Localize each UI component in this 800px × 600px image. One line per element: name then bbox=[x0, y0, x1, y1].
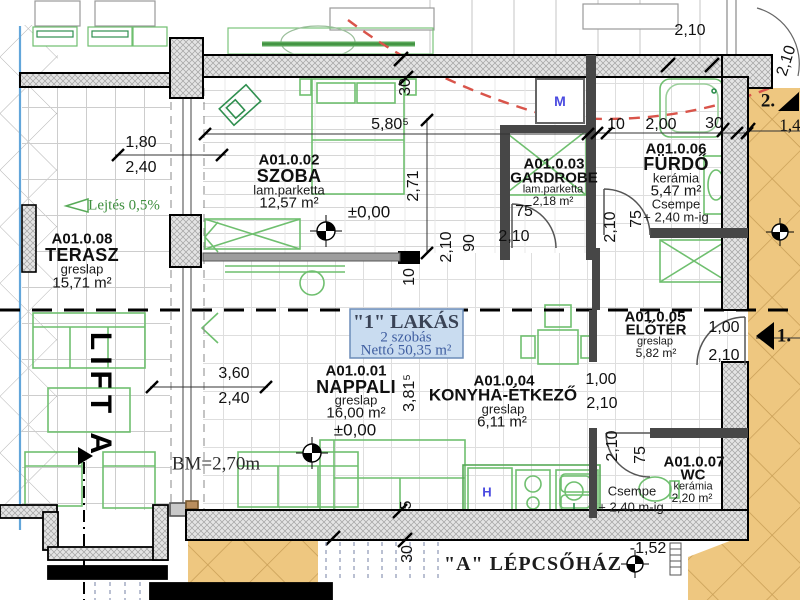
dim-1-4: 1,4 bbox=[779, 117, 800, 134]
dim-window-240: 2,40 bbox=[125, 160, 156, 176]
slope-label: Lejtés 0,5% bbox=[88, 199, 160, 214]
stair-level-label: -1,52 bbox=[630, 541, 666, 557]
dim-wall-5-bottom: 5 bbox=[399, 501, 415, 510]
dim-konyha-door-210: 2,10 bbox=[586, 396, 617, 412]
eloter-area: 5,82 m² bbox=[636, 347, 677, 359]
nappali-level: ±0,00 bbox=[334, 422, 376, 439]
dim-terasz-door-240: 2,40 bbox=[218, 391, 249, 407]
dim-szoba-width: 5,80⁵ bbox=[371, 117, 409, 133]
dim-gardrobe-door-75: 75 bbox=[515, 204, 533, 220]
lift-label: LIFT A bbox=[83, 332, 117, 460]
dim-window-180: 1,80 bbox=[125, 135, 156, 151]
konyha-area: 6,11 m² bbox=[477, 415, 527, 430]
stairwell-label: "A" LÉPCSŐHÁZ bbox=[444, 554, 622, 574]
gardrobe-area: 2,18 m² bbox=[533, 195, 574, 207]
floor-plan: A01.0.08 TERASZ greslap 15,71 m² Lejtés … bbox=[0, 0, 800, 600]
dim-furdo-30: 30 bbox=[705, 116, 723, 132]
dim-terasz-door-360: 3,60 bbox=[218, 366, 249, 382]
dim-top-210: 2,10 bbox=[674, 23, 705, 39]
shaft-m-label: M bbox=[554, 94, 566, 108]
entry-1-label: 1. bbox=[777, 327, 791, 346]
furdo-note2: + 2,40 m-ig bbox=[643, 211, 708, 224]
dim-furdo-door-210: 2,10 bbox=[603, 211, 619, 242]
wc-note2: + 2,40 m-ig bbox=[598, 501, 663, 514]
dim-hall-90: 90 bbox=[462, 234, 478, 252]
terasz-area: 15,71 m² bbox=[52, 276, 111, 291]
dim-entry-210: 2,10 bbox=[708, 348, 739, 364]
dim-konyha-door-100: 1,00 bbox=[585, 372, 616, 388]
dim-entry-100: 1,00 bbox=[708, 320, 739, 336]
fridge-h-label: H bbox=[482, 486, 491, 499]
wc-note1: Csempe bbox=[608, 485, 656, 498]
dim-wall-30-top: 30 bbox=[398, 78, 414, 96]
dim-partition-10: 10 bbox=[402, 268, 418, 286]
glass-partition bbox=[203, 253, 400, 261]
dim-nappali-381: 3,81⁵ bbox=[402, 374, 418, 412]
dim-szoba-depth: 2,71 bbox=[406, 170, 422, 201]
dim-wall-30-bottom: 30 bbox=[400, 545, 416, 563]
dim-wc-door-75: 75 bbox=[633, 446, 649, 464]
dim-wc-door-210: 2,10 bbox=[605, 430, 621, 461]
unit-net-area: Nettó 50,35 m² bbox=[361, 344, 452, 359]
dim-furdo-door-75: 75 bbox=[629, 210, 645, 228]
exit-2-label: 2. bbox=[761, 92, 775, 111]
nappali-area: 16,00 m² bbox=[326, 406, 385, 421]
szoba-area: 12,57 m² bbox=[259, 196, 318, 211]
wc-area: 2,20 m² bbox=[672, 492, 713, 504]
dim-hall-210b: 2,10 bbox=[498, 229, 529, 245]
dim-hall-210a: 2,10 bbox=[439, 231, 455, 262]
stair-grille bbox=[670, 543, 681, 575]
dim-furdo-10: 10 bbox=[607, 117, 625, 133]
clear-height-label: BM=2,70m bbox=[172, 455, 260, 474]
szoba-level: ±0,00 bbox=[348, 204, 390, 221]
dim-furdo-200: 2,00 bbox=[645, 117, 676, 133]
